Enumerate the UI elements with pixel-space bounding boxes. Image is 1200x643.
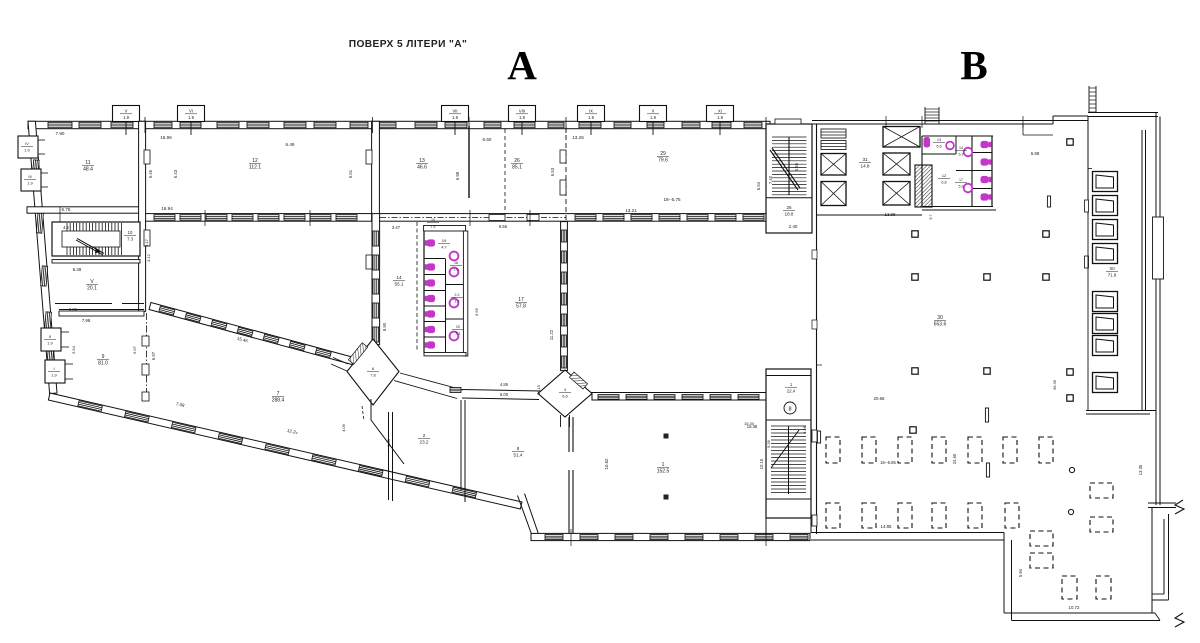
svg-text:A: A [507,42,537,88]
svg-text:7.90: 7.90 [56,131,65,136]
svg-text:10.52: 10.52 [604,458,609,470]
svg-text:VI: VI [189,109,193,114]
svg-text:5.00: 5.00 [500,392,509,397]
svg-text:7.3: 7.3 [127,237,133,242]
svg-text:81.0: 81.0 [98,361,108,367]
svg-text:1.7: 1.7 [455,300,460,304]
svg-text:5.2: 5.2 [959,153,964,157]
svg-text:10.72: 10.72 [1069,605,1081,610]
svg-text:8.90: 8.90 [382,322,387,331]
svg-text:5.6: 5.6 [936,145,941,149]
svg-text:1.9: 1.9 [650,115,656,120]
svg-text:14: 14 [396,275,402,280]
svg-text:VII: VII [452,109,457,114]
svg-text:1.9: 1.9 [588,115,594,120]
svg-text:20.1: 20.1 [87,286,97,292]
svg-text:4.7: 4.7 [441,245,447,250]
svg-text:3.47: 3.47 [392,225,401,230]
svg-text:III: III [28,174,31,179]
svg-text:3.17: 3.17 [144,238,149,247]
svg-text:9.36: 9.36 [766,439,771,448]
svg-text:10: 10 [128,230,133,235]
svg-text:79.6: 79.6 [658,158,668,164]
svg-text:13.98: 13.98 [885,212,897,217]
svg-text:51.4: 51.4 [514,453,523,458]
svg-text:12: 12 [942,174,946,178]
svg-text:6.6: 6.6 [562,394,568,399]
svg-text:6.54: 6.54 [756,181,761,190]
svg-text:18--5.75: 18--5.75 [663,197,681,202]
svg-text:6.88: 6.88 [1031,151,1040,156]
svg-text:5.94: 5.94 [1018,568,1023,577]
svg-text:18.8: 18.8 [785,212,794,217]
svg-text:7.40: 7.40 [768,175,773,184]
svg-text:2.1: 2.1 [456,332,461,336]
svg-text:5.2: 5.2 [959,185,964,189]
svg-text:16.96: 16.96 [160,135,172,140]
svg-text:23.2: 23.2 [420,440,429,445]
svg-text:1.9: 1.9 [123,115,129,120]
svg-text:71.8: 71.8 [1108,273,1117,278]
svg-text:6.43: 6.43 [173,169,178,178]
svg-text:B: B [960,42,987,88]
svg-text:14: 14 [959,146,963,150]
svg-text:17: 17 [959,178,963,182]
svg-text:6.55: 6.55 [794,162,799,171]
svg-text:6.8: 6.8 [941,181,946,185]
svg-text:ПОВЕРХ 5 ЛІТЕРИ "А": ПОВЕРХ 5 ЛІТЕРИ "А" [349,39,468,50]
svg-text:112.1: 112.1 [249,165,261,171]
svg-text:13.26: 13.26 [572,135,584,140]
svg-text:36.36: 36.36 [1052,379,1057,390]
svg-text:6.98: 6.98 [455,171,460,180]
svg-text:7.8: 7.8 [370,373,376,378]
svg-text:4.85: 4.85 [500,382,509,387]
svg-text:1.6: 1.6 [454,268,459,272]
svg-text:II: II [49,334,51,339]
svg-text:2.2: 2.2 [455,293,460,297]
svg-text:15.30: 15.30 [744,421,755,426]
svg-text:1.9: 1.9 [51,373,57,378]
svg-text:6.49: 6.49 [286,142,295,147]
svg-text:57.8: 57.8 [516,304,526,310]
svg-text:2.40: 2.40 [789,224,798,229]
svg-text:1.9: 1.9 [717,115,723,120]
svg-text:11.22: 11.22 [549,329,554,340]
svg-text:4.06: 4.06 [341,423,346,432]
svg-text:85.1: 85.1 [512,165,522,171]
svg-text:2: 2 [423,433,426,438]
svg-text:3.12: 3.12 [146,253,151,262]
svg-text:46.6: 46.6 [417,165,427,171]
svg-text:653.6: 653.6 [934,322,947,328]
svg-text:55.1: 55.1 [395,282,404,287]
svg-text:26: 26 [786,205,792,210]
svg-text:9.7: 9.7 [929,214,933,219]
svg-text:XI: XI [718,109,722,114]
svg-text:14.8: 14.8 [861,164,870,169]
svg-text:6.51: 6.51 [348,169,353,178]
svg-text:6.38: 6.38 [73,267,82,272]
svg-text:20: 20 [456,325,460,329]
svg-text:19: 19 [442,238,447,243]
svg-text:VIII: VIII [519,109,525,114]
svg-text:1.8: 1.8 [431,225,436,229]
svg-text:7.98: 7.98 [82,318,91,323]
svg-text:5.94: 5.94 [71,345,76,354]
svg-text:I: I [53,366,54,371]
svg-text:IX: IX [589,109,593,114]
svg-text:13.21: 13.21 [625,208,637,213]
svg-text:1.9: 1.9 [47,341,53,346]
svg-text:16.15: 16.15 [536,384,541,395]
svg-text:X: X [652,109,655,114]
svg-text:6.59: 6.59 [474,307,479,316]
svg-text:9.36: 9.36 [802,425,807,434]
svg-text:1.9: 1.9 [452,115,458,120]
svg-text:8: 8 [517,446,520,451]
svg-text:20.66: 20.66 [874,396,886,401]
svg-text:13: 13 [937,138,941,142]
svg-text:16.94: 16.94 [161,206,173,211]
svg-text:6.97: 6.97 [151,351,156,360]
svg-text:6.53: 6.53 [550,167,555,176]
svg-text:13.35: 13.35 [1138,464,1143,475]
svg-text:288.4: 288.4 [272,398,285,404]
svg-text:1.9: 1.9 [24,148,30,153]
svg-text:6.76: 6.76 [62,207,71,212]
svg-text:V: V [125,109,128,114]
svg-text:4.2: 4.2 [63,225,69,230]
svg-text:6.97: 6.97 [132,345,137,354]
svg-text:1.9: 1.9 [519,115,525,120]
svg-text:10: 10 [431,218,435,222]
svg-text:XII: XII [1109,266,1114,271]
svg-text:6.46: 6.46 [148,169,153,178]
svg-text:1.9: 1.9 [27,181,33,186]
svg-text:16: 16 [454,261,458,265]
svg-text:48.4: 48.4 [83,167,93,173]
svg-text:31: 31 [862,157,868,162]
svg-text:16--5.85: 16--5.85 [880,460,896,465]
svg-text:14.85: 14.85 [881,524,893,529]
svg-text:8: 8 [788,407,791,413]
svg-text:10.15: 10.15 [759,458,764,469]
svg-text:22.4: 22.4 [787,389,796,394]
svg-text:IV: IV [25,141,29,146]
svg-text:152.5: 152.5 [657,469,670,475]
svg-text:6.56: 6.56 [499,224,508,229]
svg-text:24.65: 24.65 [952,453,957,464]
svg-text:1.9: 1.9 [188,115,194,120]
svg-text:6.60: 6.60 [483,137,492,142]
